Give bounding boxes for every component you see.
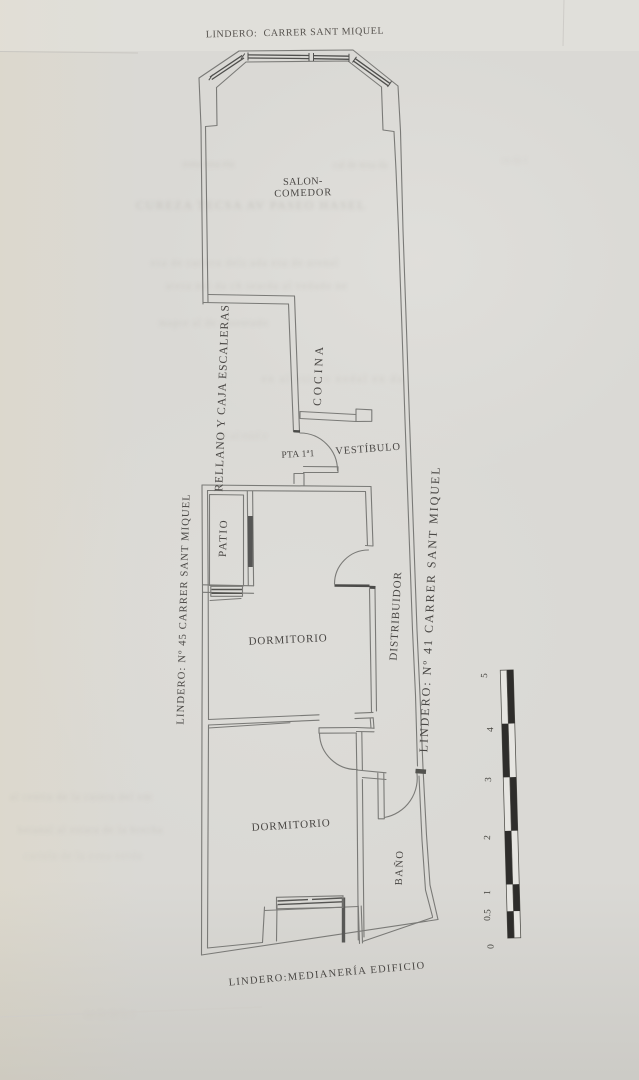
svg-text:SALON-: SALON- [283,176,323,188]
svg-text:cal de texa da: cal de texa da [333,160,388,171]
svg-text:COCINA: COCINA [312,344,326,406]
svg-text:mapre al de casentado: mapre al de casentado [159,318,269,329]
svg-text:COMEDOR: COMEDOR [274,187,332,200]
svg-text:al centra de la casera del om: al centra de la casera del om [10,792,152,803]
svg-text:CUREZA TECSA AV PASEO HASEL: CUREZA TECSA AV PASEO HASEL [136,198,366,212]
svg-text:1: 1 [483,890,493,895]
svg-text:zona rusa eta: zona rusa eta [182,159,235,170]
svg-text:3: 3 [484,777,494,782]
svg-text:esa de cartera dels ada esa de: esa de cartera dels ada esa de arenal [151,258,339,269]
svg-text:na da de la e: na da de la e [85,1009,136,1020]
svg-text:ra da t: ra da t [502,155,527,166]
svg-text:atesa nel da ch searda al veda: atesa nel da ch searda al vedado ne [166,281,348,292]
svg-text:2: 2 [483,835,493,840]
svg-text:0: 0 [487,944,497,949]
svg-text:cartela de la zona verda: cartela de la zona verda [24,851,142,862]
svg-text:5: 5 [480,673,490,678]
svg-text:4: 4 [486,727,496,732]
svg-text:PTA 1ª1: PTA 1ª1 [281,449,315,461]
svg-text:betanal al estara de la brecha: betanal al estara de la brecha [18,825,163,836]
svg-text:0.5: 0.5 [483,909,493,921]
svg-text:BAÑO: BAÑO [393,849,406,885]
svg-text:en al estero nodal en da: en al estero nodal en da [262,374,404,385]
svg-text:PATIO: PATIO [217,519,230,558]
